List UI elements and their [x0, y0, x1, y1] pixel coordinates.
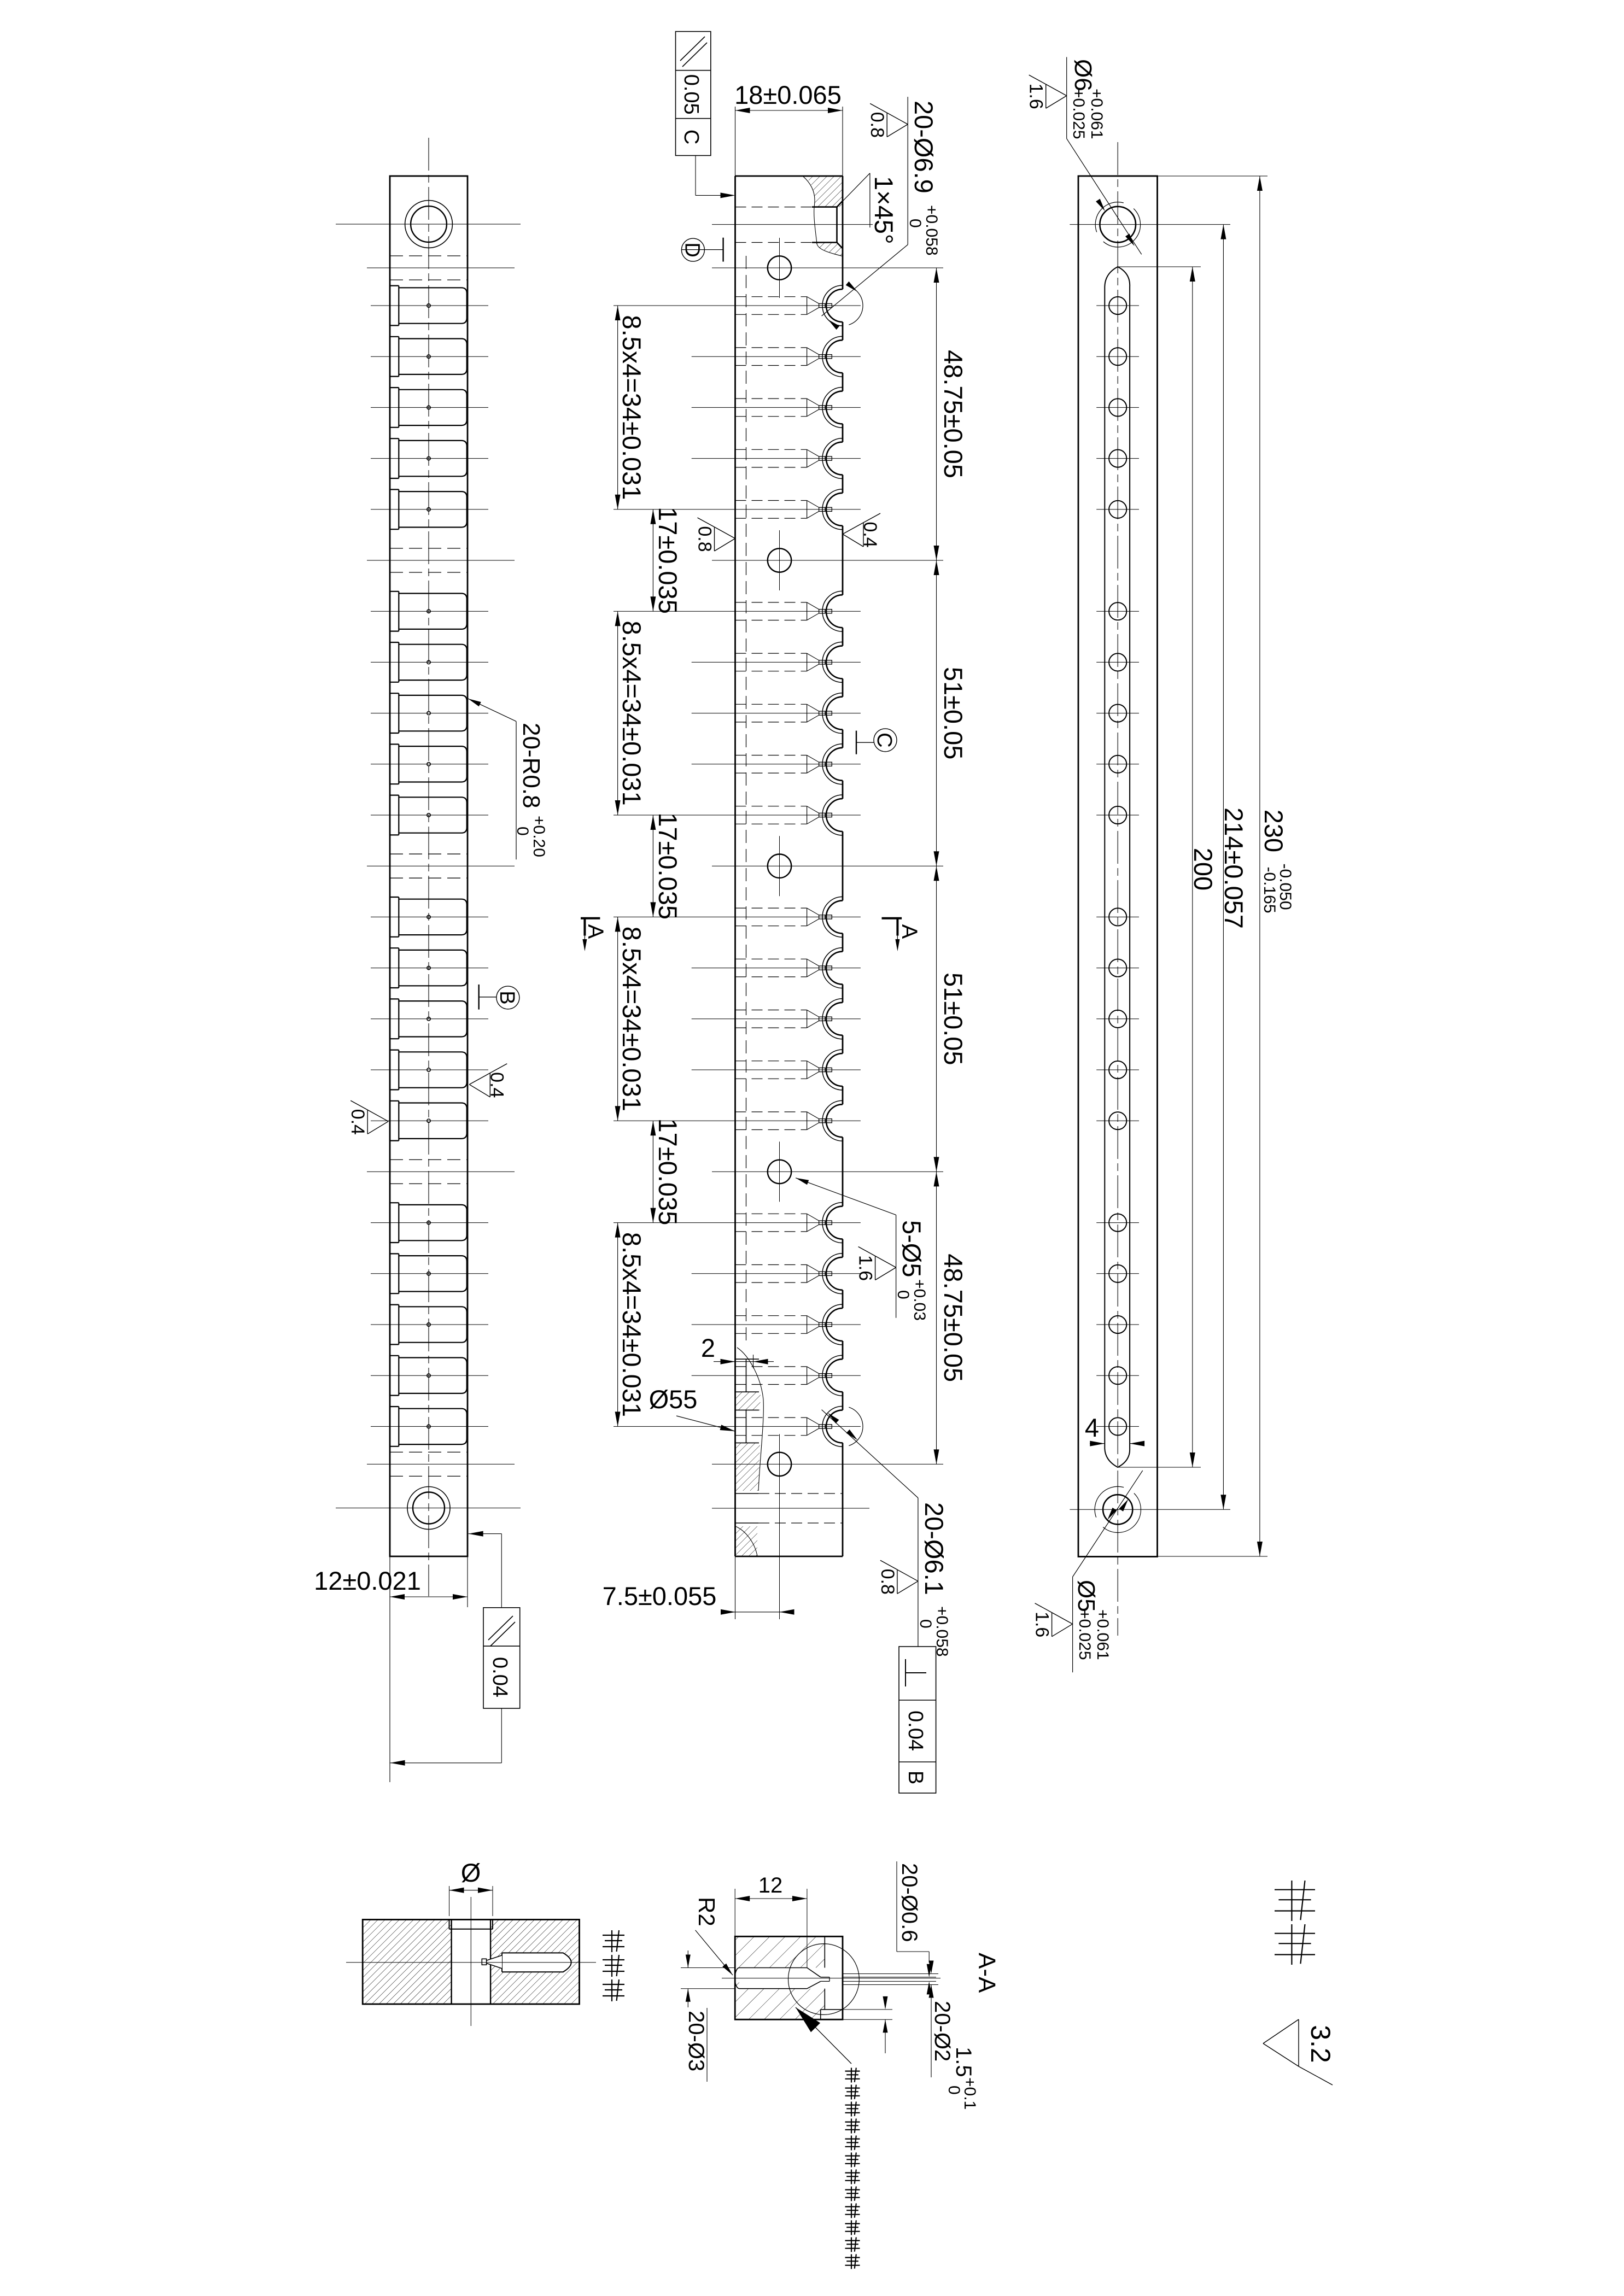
- svg-text:-0.165: -0.165: [1260, 866, 1278, 913]
- svg-text:18±0.065: 18±0.065: [734, 80, 842, 109]
- svg-text:0.8: 0.8: [867, 112, 887, 138]
- svg-text:0.8: 0.8: [877, 1569, 898, 1595]
- svg-text:8.5x4=34±0.031: 8.5x4=34±0.031: [617, 621, 646, 806]
- svg-text:214±0.057: 214±0.057: [1219, 807, 1248, 929]
- svg-text:1×45°: 1×45°: [869, 176, 898, 244]
- svg-text:20-Ø0.6: 20-Ø0.6: [897, 1863, 921, 1942]
- svg-text:230: 230: [1259, 810, 1288, 852]
- svg-text:2: 2: [701, 1333, 715, 1362]
- svg-text:B: B: [495, 991, 518, 1004]
- svg-text:200: 200: [1189, 848, 1218, 891]
- svg-text:+0.058: +0.058: [922, 205, 940, 256]
- svg-text:0.04: 0.04: [488, 1657, 511, 1697]
- svg-text:20-R0.8: 20-R0.8: [518, 723, 545, 809]
- svg-text:51±0.05: 51±0.05: [939, 973, 968, 1065]
- svg-text:0.4: 0.4: [486, 1072, 507, 1098]
- svg-text:0: 0: [894, 1290, 912, 1299]
- svg-text:12±0.021: 12±0.021: [314, 1566, 421, 1595]
- svg-text:48.75±0.05: 48.75±0.05: [939, 1254, 968, 1382]
- svg-text:+0.03: +0.03: [910, 1279, 928, 1321]
- svg-text:20-Ø3: 20-Ø3: [684, 2011, 708, 2071]
- svg-text:0.8: 0.8: [694, 526, 715, 552]
- svg-text:Ø5: Ø5: [1073, 1580, 1100, 1612]
- svg-text:Ø: Ø: [461, 1858, 481, 1887]
- svg-text:+0.061: +0.061: [1094, 1609, 1112, 1660]
- svg-text:B: B: [904, 1771, 927, 1784]
- svg-text:1.6: 1.6: [855, 1255, 876, 1281]
- svg-text:20-Ø2: 20-Ø2: [930, 2001, 954, 2061]
- svg-text:0.05: 0.05: [680, 74, 703, 115]
- svg-text:1.6: 1.6: [1032, 1612, 1053, 1637]
- svg-text:0: 0: [945, 2086, 963, 2095]
- svg-text:A-A: A-A: [973, 1953, 1000, 1993]
- svg-text:48.75±0.05: 48.75±0.05: [939, 350, 968, 478]
- svg-text:20-Ø6.9: 20-Ø6.9: [909, 101, 938, 194]
- svg-text:17±0.035: 17±0.035: [653, 507, 682, 614]
- svg-text:1.6: 1.6: [1026, 83, 1047, 109]
- svg-text:4: 4: [1085, 1413, 1099, 1442]
- svg-text:A: A: [897, 924, 921, 939]
- svg-text:C: C: [873, 733, 896, 747]
- svg-text:1.5: 1.5: [951, 2047, 975, 2077]
- svg-text:5-Ø5: 5-Ø5: [897, 1220, 926, 1278]
- svg-text:Ø6: Ø6: [1070, 59, 1096, 91]
- svg-text:8.5x4=34±0.031: 8.5x4=34±0.031: [617, 927, 646, 1111]
- svg-text:8.5x4=34±0.031: 8.5x4=34±0.031: [617, 1232, 646, 1417]
- svg-text:0: 0: [916, 1619, 934, 1629]
- svg-text:+0.061: +0.061: [1088, 89, 1106, 139]
- svg-text:0: 0: [906, 219, 924, 228]
- svg-text:A: A: [583, 924, 607, 939]
- svg-text:C: C: [680, 130, 703, 144]
- svg-text:R2: R2: [694, 1897, 720, 1926]
- svg-text:0.04: 0.04: [904, 1711, 927, 1751]
- svg-text:Ø55: Ø55: [649, 1385, 698, 1414]
- svg-text:8.5x4=34±0.031: 8.5x4=34±0.031: [617, 315, 646, 500]
- svg-text:20-Ø6.1: 20-Ø6.1: [920, 1502, 949, 1595]
- svg-text:12: 12: [758, 1873, 783, 1897]
- svg-text:+0.025: +0.025: [1076, 1609, 1094, 1660]
- svg-text:0.4: 0.4: [347, 1109, 368, 1135]
- svg-text:3.2: 3.2: [1305, 2025, 1336, 2063]
- svg-text:17±0.035: 17±0.035: [653, 812, 682, 919]
- svg-text:+0.025: +0.025: [1070, 89, 1088, 139]
- svg-text:51±0.05: 51±0.05: [939, 667, 968, 760]
- svg-text:0.4: 0.4: [860, 522, 880, 547]
- svg-text:7.5±0.055: 7.5±0.055: [603, 1582, 717, 1610]
- svg-text:17±0.035: 17±0.035: [653, 1118, 682, 1226]
- svg-text:0: 0: [513, 827, 531, 836]
- svg-text:D: D: [680, 242, 703, 257]
- svg-text:+0.20: +0.20: [530, 816, 548, 857]
